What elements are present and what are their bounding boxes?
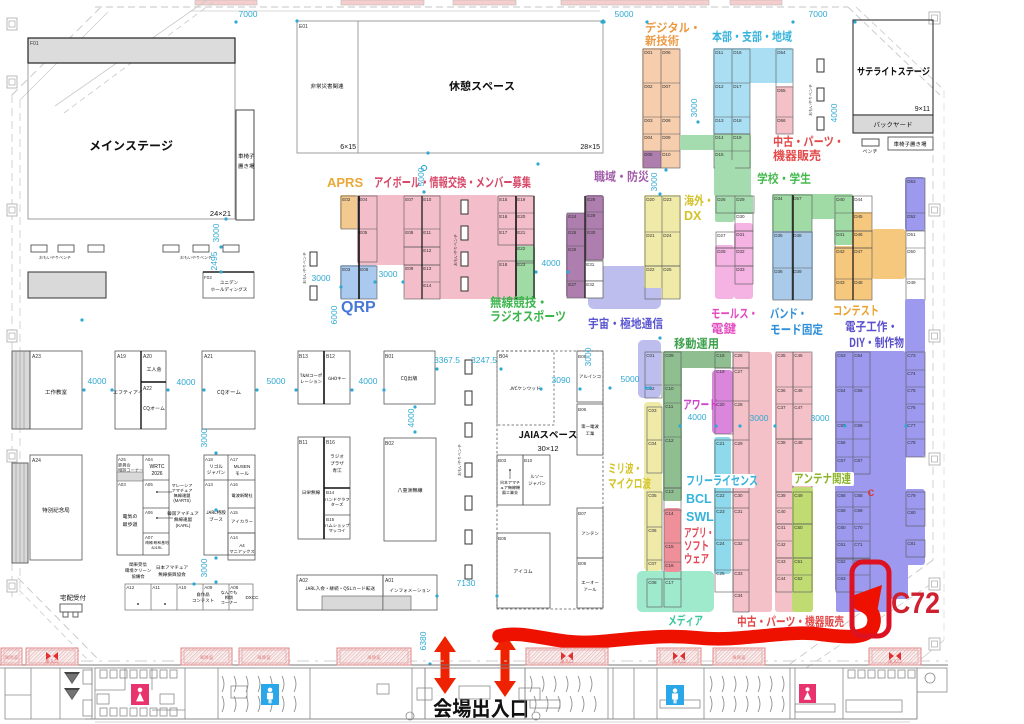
svg-text:D35: D35 — [774, 233, 783, 238]
svg-text:C15: C15 — [665, 544, 674, 549]
svg-text:D07: D07 — [662, 84, 671, 89]
svg-text:A13: A13 — [205, 482, 213, 487]
svg-text:E24: E24 — [568, 214, 577, 219]
svg-text:C07: C07 — [648, 561, 657, 566]
svg-text:C10: C10 — [665, 386, 674, 391]
svg-text:C60: C60 — [837, 525, 846, 530]
svg-text:D32: D32 — [736, 249, 745, 254]
svg-text:E01: E01 — [299, 24, 308, 30]
svg-text:D06: D06 — [662, 50, 671, 55]
svg-text:D38: D38 — [793, 233, 802, 238]
svg-text:E16: E16 — [499, 214, 508, 219]
svg-text:D09: D09 — [662, 135, 671, 140]
svg-text:D11: D11 — [715, 50, 724, 55]
svg-text:D47: D47 — [854, 249, 863, 254]
svg-text:C21: C21 — [716, 441, 725, 446]
svg-text:B04: B04 — [499, 354, 508, 360]
svg-text:C33: C33 — [734, 571, 743, 576]
svg-text:E25: E25 — [568, 230, 577, 235]
svg-text:E28: E28 — [587, 197, 596, 202]
svg-text:B03: B03 — [498, 458, 507, 463]
svg-text:C52: C52 — [794, 576, 803, 581]
svg-text:C24: C24 — [716, 541, 725, 546]
svg-text:C42: C42 — [777, 542, 786, 547]
svg-text:C81: C81 — [907, 541, 916, 546]
svg-text:B05: B05 — [498, 536, 507, 541]
svg-text:4000: 4000 — [88, 376, 107, 386]
svg-text:C48: C48 — [794, 440, 803, 445]
svg-text:C39: C39 — [777, 493, 786, 498]
svg-text:3000: 3000 — [211, 223, 221, 242]
svg-text:D15: D15 — [715, 152, 724, 157]
svg-text:2026: 2026 — [151, 471, 162, 477]
svg-text:C18: C18 — [716, 353, 725, 358]
svg-text:E23: E23 — [517, 262, 526, 267]
svg-text:E09: E09 — [405, 266, 414, 271]
svg-text:7000: 7000 — [809, 9, 828, 19]
svg-text:D49: D49 — [907, 280, 916, 285]
svg-text:D14: D14 — [715, 135, 724, 140]
svg-text:A08: A08 — [230, 585, 239, 590]
svg-text:C47: C47 — [794, 405, 803, 410]
svg-text:B09: B09 — [578, 561, 587, 566]
svg-text:D13: D13 — [715, 118, 724, 123]
svg-text:2495: 2495 — [209, 251, 219, 270]
svg-text:C06: C06 — [648, 528, 657, 533]
svg-text:E13: E13 — [423, 266, 432, 271]
svg-text:D18: D18 — [733, 118, 742, 123]
svg-text:7000: 7000 — [239, 9, 258, 19]
svg-text:D23: D23 — [663, 197, 672, 202]
svg-text:C69: C69 — [854, 508, 863, 513]
svg-text:A21: A21 — [204, 354, 213, 360]
svg-text:D29: D29 — [736, 197, 745, 202]
svg-text:E19: E19 — [517, 197, 526, 202]
svg-text:D40: D40 — [836, 197, 845, 202]
svg-text:D55: D55 — [777, 88, 786, 93]
svg-text:A05: A05 — [145, 482, 153, 487]
svg-text:24×21: 24×21 — [210, 209, 231, 218]
svg-text:SWL: SWL — [686, 510, 714, 524]
svg-text:D10: D10 — [662, 152, 671, 157]
svg-text:C53: C53 — [837, 353, 846, 358]
svg-text:WRTC: WRTC — [150, 464, 165, 470]
svg-text:E02: E02 — [342, 197, 351, 202]
svg-text:(MARTS): (MARTS) — [173, 498, 191, 503]
svg-text:D45: D45 — [854, 214, 863, 219]
svg-text:B11: B11 — [299, 440, 308, 446]
svg-text:C50: C50 — [794, 525, 803, 530]
svg-text:C26: C26 — [734, 353, 743, 358]
svg-text:C44: C44 — [777, 576, 786, 581]
svg-text:4000: 4000 — [406, 408, 416, 427]
svg-text:A4: A4 — [239, 543, 245, 548]
svg-text:B14: B14 — [326, 490, 335, 495]
svg-text:3367.5: 3367.5 — [434, 355, 460, 365]
svg-text:C74: C74 — [907, 371, 916, 376]
svg-text:C63: C63 — [837, 576, 846, 581]
svg-text:E08: E08 — [405, 230, 414, 235]
svg-text:C57: C57 — [837, 458, 846, 463]
svg-text:C28: C28 — [734, 402, 743, 407]
svg-text:D12: D12 — [715, 84, 724, 89]
svg-text:A03: A03 — [118, 482, 126, 487]
svg-text:C66: C66 — [854, 423, 863, 428]
svg-text:E04: E04 — [359, 197, 368, 202]
svg-text:B16: B16 — [326, 440, 335, 446]
svg-text:C78: C78 — [907, 440, 916, 445]
svg-text:8J1RL: 8J1RL — [152, 546, 163, 550]
svg-text:3090: 3090 — [552, 375, 571, 385]
svg-text:3000: 3000 — [312, 273, 331, 283]
svg-text:D08: D08 — [662, 118, 671, 123]
svg-text:C27: C27 — [734, 369, 743, 374]
svg-text:C38: C38 — [777, 440, 786, 445]
svg-text:D26: D26 — [717, 197, 726, 202]
svg-text:28×15: 28×15 — [580, 144, 600, 151]
svg-text:3000: 3000 — [199, 558, 209, 577]
svg-text:D21: D21 — [646, 233, 655, 238]
svg-text:C51: C51 — [794, 559, 803, 564]
svg-text:C35: C35 — [777, 353, 786, 358]
svg-text:A09: A09 — [204, 585, 213, 590]
svg-text:C25: C25 — [716, 571, 725, 576]
svg-text:A01: A01 — [385, 578, 394, 584]
svg-text:E22: E22 — [517, 246, 526, 251]
svg-text:C54: C54 — [837, 388, 846, 393]
svg-text:E14: E14 — [423, 283, 432, 288]
svg-text:D54: D54 — [777, 50, 786, 55]
svg-text:BCL: BCL — [686, 492, 712, 506]
svg-text:D16: D16 — [733, 50, 742, 55]
svg-text:A04: A04 — [145, 457, 153, 462]
svg-text:F02: F02 — [204, 275, 212, 280]
svg-text:C20: C20 — [716, 402, 725, 407]
svg-text:C14: C14 — [665, 511, 674, 516]
svg-text:A10: A10 — [178, 585, 187, 590]
svg-text:C77: C77 — [907, 423, 916, 428]
svg-text:C62: C62 — [837, 559, 846, 564]
svg-text:C75: C75 — [907, 388, 916, 393]
svg-text:E18: E18 — [499, 262, 508, 267]
svg-text:D01: D01 — [644, 50, 653, 55]
svg-text:C56: C56 — [837, 440, 846, 445]
svg-text:D41: D41 — [836, 232, 845, 237]
svg-text:C29: C29 — [734, 441, 743, 446]
svg-text:E29: E29 — [587, 213, 596, 218]
svg-text:3000: 3000 — [583, 347, 593, 366]
svg-text:E12: E12 — [423, 248, 432, 253]
svg-text:C49: C49 — [794, 493, 803, 498]
svg-text:C67: C67 — [854, 458, 863, 463]
svg-text:C08: C08 — [648, 580, 657, 585]
svg-text:(KARL): (KARL) — [176, 523, 191, 528]
svg-text:C23: C23 — [716, 509, 725, 514]
svg-text:E06: E06 — [360, 267, 369, 272]
svg-text:D51: D51 — [907, 232, 916, 237]
svg-text:C11: C11 — [665, 404, 674, 409]
svg-text:C58: C58 — [837, 493, 846, 498]
svg-text:4000: 4000 — [829, 103, 839, 122]
svg-text:C40: C40 — [777, 509, 786, 514]
svg-text:E20: E20 — [517, 214, 526, 219]
svg-text:C70: C70 — [854, 525, 863, 530]
svg-text:A22: A22 — [143, 386, 152, 392]
svg-text:C30: C30 — [734, 493, 743, 498]
svg-text:C43: C43 — [777, 559, 786, 564]
svg-text:E03: E03 — [342, 267, 351, 272]
svg-text:3000: 3000 — [811, 413, 830, 423]
svg-text:C71: C71 — [854, 542, 863, 547]
svg-text:D52: D52 — [907, 214, 916, 219]
svg-text:C45: C45 — [794, 353, 803, 358]
svg-text:E27: E27 — [568, 282, 577, 287]
svg-text:F01: F01 — [30, 41, 39, 47]
svg-text:4000: 4000 — [688, 412, 707, 422]
svg-text:A07: A07 — [145, 535, 153, 540]
svg-text:3000: 3000 — [379, 269, 398, 279]
svg-text:C73: C73 — [907, 353, 916, 358]
svg-text:7130: 7130 — [457, 578, 476, 588]
svg-text:B13: B13 — [299, 354, 308, 360]
svg-text:D17: D17 — [733, 84, 742, 89]
svg-text:C59: C59 — [837, 508, 846, 513]
svg-text:C80: C80 — [907, 510, 916, 515]
svg-text:C13: C13 — [665, 489, 674, 494]
svg-text:D44: D44 — [854, 197, 863, 202]
svg-text:E10: E10 — [423, 197, 432, 202]
svg-text:D56: D56 — [777, 118, 786, 123]
svg-text:A18: A18 — [205, 457, 213, 462]
svg-text:E15: E15 — [499, 197, 508, 202]
svg-text:C68: C68 — [854, 493, 863, 498]
svg-text:3000: 3000 — [199, 428, 209, 447]
svg-text:5000: 5000 — [621, 374, 640, 384]
svg-text:6380: 6380 — [418, 631, 428, 650]
svg-text:DXCC: DXCC — [245, 595, 259, 600]
svg-text:C12: C12 — [665, 438, 674, 443]
svg-text:A25: A25 — [118, 457, 126, 462]
svg-text:C37: C37 — [777, 405, 786, 410]
svg-text:6000: 6000 — [329, 305, 339, 324]
svg-text:B01: B01 — [385, 354, 394, 360]
svg-text:3000: 3000 — [689, 98, 699, 117]
svg-text:B06: B06 — [578, 407, 587, 412]
svg-text:4000: 4000 — [177, 377, 196, 387]
svg-text:B02: B02 — [385, 441, 394, 447]
svg-text:A23: A23 — [32, 354, 41, 360]
svg-text:C01: C01 — [646, 353, 655, 358]
svg-text:D39: D39 — [793, 269, 802, 274]
svg-text:A19: A19 — [117, 354, 126, 360]
svg-text:C31: C31 — [734, 509, 743, 514]
svg-text:D27: D27 — [717, 233, 726, 238]
svg-text:C79: C79 — [907, 493, 916, 498]
svg-text:D04: D04 — [644, 135, 653, 140]
svg-text:5000: 5000 — [267, 376, 286, 386]
svg-text:5000: 5000 — [615, 9, 634, 19]
svg-text:D34: D34 — [774, 196, 783, 201]
svg-text:D05: D05 — [644, 152, 653, 157]
svg-text:A11: A11 — [152, 585, 160, 590]
svg-text:D46: D46 — [854, 232, 863, 237]
svg-text:D02: D02 — [644, 84, 653, 89]
svg-text:4000: 4000 — [542, 258, 561, 268]
svg-text:C65: C65 — [854, 388, 863, 393]
svg-text:APRS: APRS — [327, 175, 363, 190]
svg-text:MUSEN: MUSEN — [234, 464, 251, 469]
svg-text:C76: C76 — [907, 405, 916, 410]
svg-text:A06: A06 — [145, 510, 153, 515]
svg-text:C72: C72 — [891, 587, 940, 620]
svg-text:D30: D30 — [736, 214, 745, 219]
svg-text:C17: C17 — [665, 580, 674, 585]
svg-text:A16: A16 — [230, 482, 238, 487]
svg-text:C05: C05 — [648, 493, 657, 498]
svg-text:3000: 3000 — [750, 413, 769, 423]
svg-text:A20: A20 — [143, 354, 152, 360]
svg-text:D42: D42 — [836, 249, 845, 254]
svg-text:D24: D24 — [663, 233, 672, 238]
svg-text:DX: DX — [684, 209, 702, 223]
svg-text:A14: A14 — [230, 535, 238, 540]
svg-text:D19: D19 — [733, 135, 742, 140]
svg-text:D03: D03 — [644, 118, 653, 123]
svg-text:C19: C19 — [716, 369, 725, 374]
svg-text:B10: B10 — [524, 458, 533, 463]
svg-text:4000: 4000 — [359, 376, 378, 386]
svg-text:D53: D53 — [907, 179, 916, 184]
svg-text:QRP: QRP — [341, 299, 376, 316]
svg-text:D20: D20 — [646, 197, 655, 202]
svg-text:D33: D33 — [736, 267, 745, 272]
svg-text:6×15: 6×15 — [340, 144, 356, 151]
svg-text:E30: E30 — [587, 230, 596, 235]
svg-text:C16: C16 — [665, 563, 674, 568]
svg-text:D22: D22 — [646, 267, 655, 272]
svg-text:D48: D48 — [854, 280, 863, 285]
svg-text:D25: D25 — [663, 267, 672, 272]
svg-text:3247.5: 3247.5 — [471, 355, 497, 365]
svg-text:E32: E32 — [586, 282, 595, 287]
svg-text:C41: C41 — [777, 525, 786, 530]
svg-text:C61: C61 — [837, 542, 846, 547]
svg-text:A24: A24 — [32, 458, 41, 464]
svg-text:C36: C36 — [777, 388, 786, 393]
svg-text:D31: D31 — [736, 232, 745, 237]
svg-text:C: C — [868, 488, 875, 498]
svg-text:E31: E31 — [586, 262, 595, 267]
svg-text:E26: E26 — [568, 247, 577, 252]
svg-text:E21: E21 — [517, 230, 526, 235]
svg-text:B15: B15 — [326, 517, 335, 522]
svg-text:D28: D28 — [717, 249, 726, 254]
svg-text:A12: A12 — [126, 585, 135, 590]
svg-text:C03: C03 — [648, 408, 657, 413]
svg-text:D57: D57 — [793, 196, 802, 201]
svg-text:E07: E07 — [405, 197, 414, 202]
svg-text:A15: A15 — [230, 510, 238, 515]
svg-text:3000: 3000 — [649, 172, 659, 191]
svg-text:E05: E05 — [359, 230, 368, 235]
svg-text:B12: B12 — [326, 354, 335, 360]
svg-text:A17: A17 — [230, 457, 238, 462]
svg-text:C04: C04 — [648, 441, 657, 446]
svg-text:C64: C64 — [854, 353, 863, 358]
svg-text:D50: D50 — [907, 249, 916, 254]
svg-text:5000: 5000 — [416, 167, 426, 186]
svg-text:D36: D36 — [774, 269, 783, 274]
svg-text:C34: C34 — [734, 593, 743, 598]
svg-text:D43: D43 — [836, 280, 845, 285]
svg-text:C09: C09 — [665, 353, 674, 358]
svg-text:9×11: 9×11 — [915, 106, 930, 113]
svg-text:E17: E17 — [499, 230, 508, 235]
svg-text:E11: E11 — [423, 230, 431, 235]
svg-text:A02: A02 — [299, 578, 308, 584]
svg-text:C22: C22 — [716, 493, 725, 498]
svg-text:C32: C32 — [734, 541, 743, 546]
svg-text:B07: B07 — [578, 511, 587, 516]
svg-text:30×12: 30×12 — [537, 444, 558, 453]
svg-text:C46: C46 — [794, 388, 803, 393]
